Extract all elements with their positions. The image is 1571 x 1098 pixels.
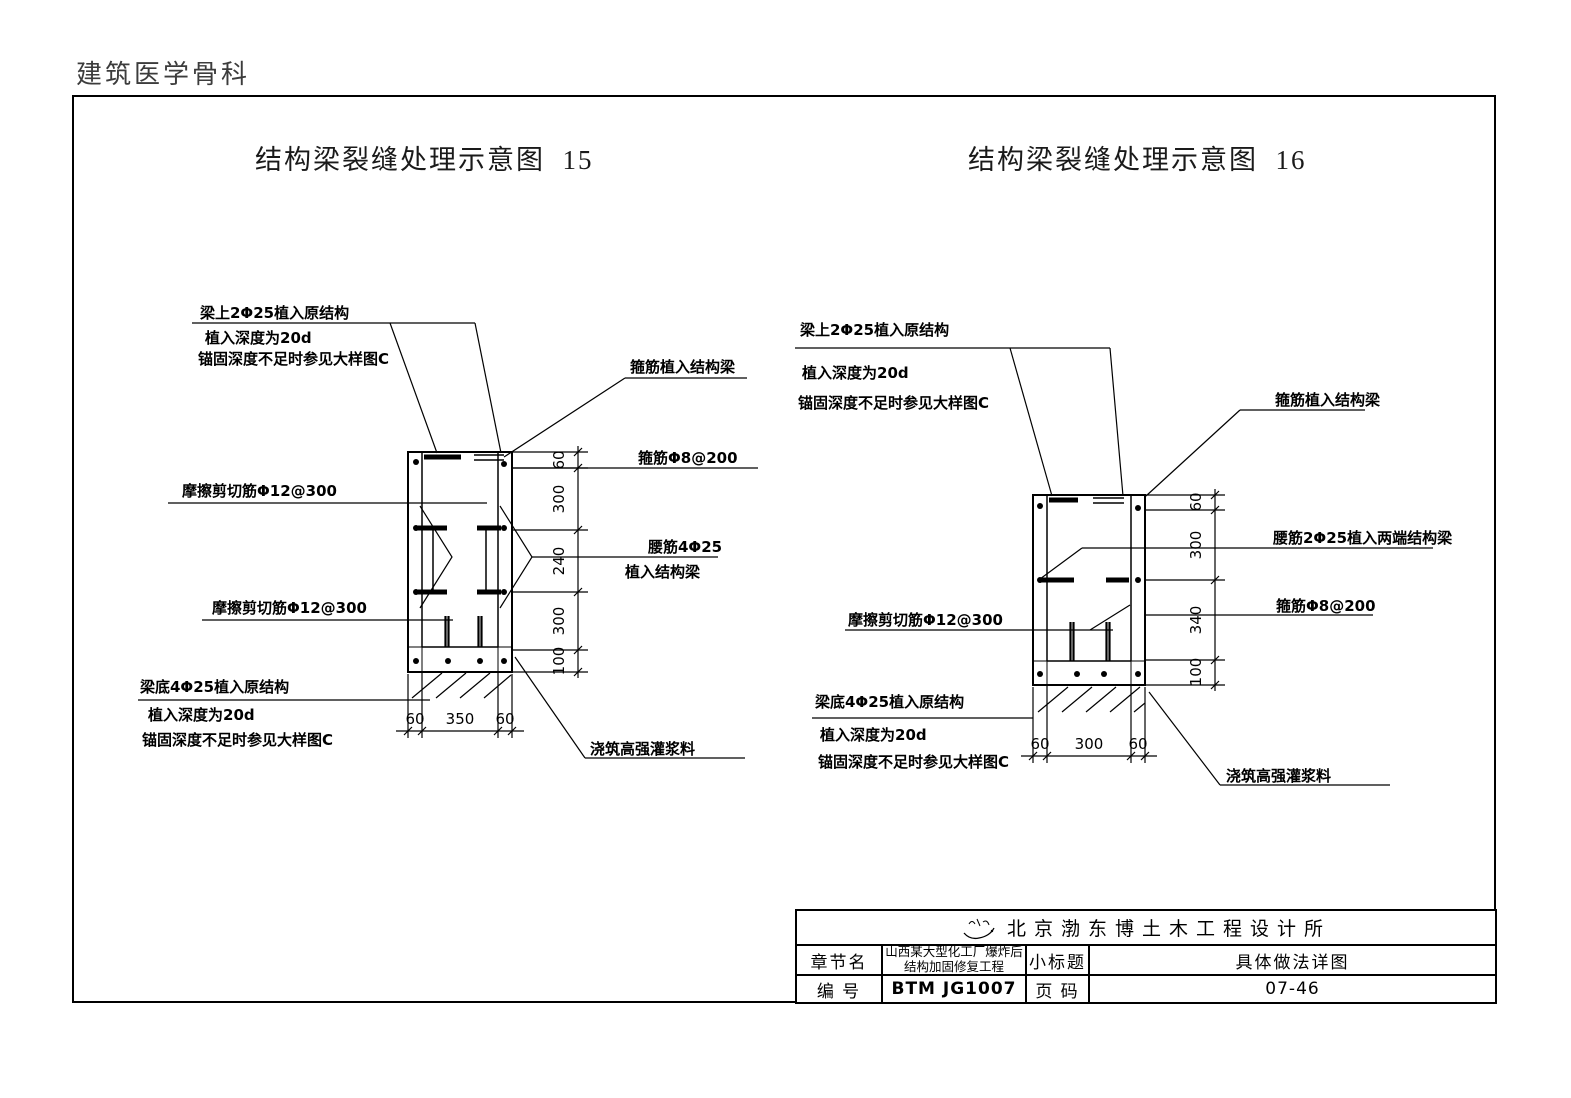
dim-v-300-lower-15: 300 bbox=[550, 607, 568, 636]
label-friction-lower-15: 摩擦剪切筋Φ12@300 bbox=[212, 599, 367, 617]
label-bottom-bars-16: 梁底4Φ25植入原结构 bbox=[814, 693, 964, 711]
dim-v-340-16: 340 bbox=[1187, 606, 1205, 635]
diagram15-drawing: 梁上2Φ25植入原结构 植入深度为20d 锚固深度不足时参见大样图C 箍筋植入结… bbox=[130, 290, 770, 780]
label-grout-16: 浇筑高强灌浆料 bbox=[1226, 767, 1331, 785]
chapter-value-line2: 结构加固修复工程 bbox=[904, 960, 1004, 975]
title-block-company-row: 北京渤东博土木工程设计所 bbox=[797, 911, 1495, 944]
drawing-sheet: 建筑医学骨科 结构梁裂缝处理示意图 15 结构梁裂缝处理示意图 16 bbox=[0, 0, 1571, 1098]
label-embed-depth-top-16: 植入深度为20d bbox=[802, 364, 909, 382]
dim-v-60-16: 60 bbox=[1187, 492, 1205, 511]
grout-hatch-15 bbox=[412, 673, 511, 698]
label-embed-depth-bottom-15: 植入深度为20d bbox=[148, 706, 255, 724]
diagram15-title: 结构梁裂缝处理示意图 15 bbox=[255, 138, 594, 177]
dim-v-240-15: 240 bbox=[550, 547, 568, 576]
page-label-cell: 页 码 bbox=[1025, 974, 1088, 1002]
label-friction-upper-15: 摩擦剪切筋Φ12@300 bbox=[182, 482, 337, 500]
number-value-cell: BTM JG1007 bbox=[881, 974, 1025, 1002]
dim-h-60-left-16: 60 bbox=[1030, 735, 1049, 753]
label-top-bars-15: 梁上2Φ25植入原结构 bbox=[199, 304, 349, 322]
diagram16-drawing: 梁上2Φ25植入原结构 植入深度为20d 锚固深度不足时参见大样图C 箍筋植入结… bbox=[790, 300, 1480, 810]
label-bottom-bars-15: 梁底4Φ25植入原结构 bbox=[139, 678, 289, 696]
dim-v-300-16: 300 bbox=[1187, 531, 1205, 560]
page-value-cell: 07-46 bbox=[1088, 974, 1495, 1002]
label-waist-bars-15: 腰筋4Φ25 bbox=[647, 538, 722, 556]
diagram16-title: 结构梁裂缝处理示意图 16 bbox=[968, 138, 1307, 177]
leader-lines-16 bbox=[795, 348, 1433, 785]
dim-h-60-left-15: 60 bbox=[405, 710, 424, 728]
company-name: 北京渤东博土木工程设计所 bbox=[1007, 914, 1331, 941]
label-top-bars-16: 梁上2Φ25植入原结构 bbox=[799, 321, 949, 339]
title-block: 北京渤东博土木工程设计所 章节名 山西某大型化工厂爆炸后 结构加固修复工程 小标… bbox=[795, 909, 1497, 1004]
label-stirrup-embed-16: 箍筋植入结构梁 bbox=[1275, 391, 1381, 409]
company-logo-icon bbox=[961, 915, 997, 941]
dim-h-60-right-16: 60 bbox=[1128, 735, 1147, 753]
beam-section-15 bbox=[408, 452, 512, 672]
beam-section-16 bbox=[1033, 495, 1145, 685]
grout-hatch-16 bbox=[1038, 687, 1145, 712]
label-anchor-note-top-15: 锚固深度不足时参见大样图C bbox=[198, 350, 389, 368]
dim-v-60-top-15: 60 bbox=[550, 450, 568, 469]
label-stirrup-spec-15: 箍筋Φ8@200 bbox=[638, 449, 738, 467]
dim-h-350-15: 350 bbox=[446, 710, 475, 728]
label-grout-15: 浇筑高强灌浆料 bbox=[590, 740, 695, 758]
label-anchor-note-top-16: 锚固深度不足时参见大样图C bbox=[798, 394, 989, 412]
beam-rebar-15 bbox=[413, 455, 532, 664]
chapter-value-line1: 山西某大型化工厂爆炸后 bbox=[885, 945, 1023, 960]
label-anchor-note-bottom-16: 锚固深度不足时参见大样图C bbox=[818, 753, 1009, 771]
dim-v-100-15: 100 bbox=[550, 647, 568, 676]
page-header-label: 建筑医学骨科 bbox=[76, 54, 250, 91]
dim-v-100-16: 100 bbox=[1187, 658, 1205, 687]
dim-h-300-16: 300 bbox=[1075, 735, 1104, 753]
label-stirrup-embed-15: 箍筋植入结构梁 bbox=[630, 358, 736, 376]
label-friction-16: 摩擦剪切筋Φ12@300 bbox=[848, 611, 1003, 629]
label-embed-depth-bottom-16: 植入深度为20d bbox=[820, 726, 927, 744]
label-waist-bars2-15: 植入结构梁 bbox=[625, 563, 701, 581]
dim-h-60-right-15: 60 bbox=[495, 710, 514, 728]
label-anchor-note-bottom-15: 锚固深度不足时参见大样图C bbox=[142, 731, 333, 749]
dim-v-300-upper-15: 300 bbox=[550, 485, 568, 514]
subtitle-value-cell: 具体做法详图 bbox=[1088, 944, 1495, 974]
beam-rebar-16 bbox=[1037, 498, 1141, 677]
label-embed-depth-top-15: 植入深度为20d bbox=[205, 329, 312, 347]
label-stirrup-spec-16: 箍筋Φ8@200 bbox=[1276, 597, 1376, 615]
subtitle-label-cell: 小标题 bbox=[1025, 944, 1088, 974]
chapter-label-cell: 章节名 bbox=[797, 944, 881, 974]
label-waist-bars-16: 腰筋2Φ25植入两端结构梁 bbox=[1272, 529, 1453, 547]
number-label-cell: 编 号 bbox=[797, 974, 881, 1002]
chapter-value-cell: 山西某大型化工厂爆炸后 结构加固修复工程 bbox=[881, 944, 1025, 974]
